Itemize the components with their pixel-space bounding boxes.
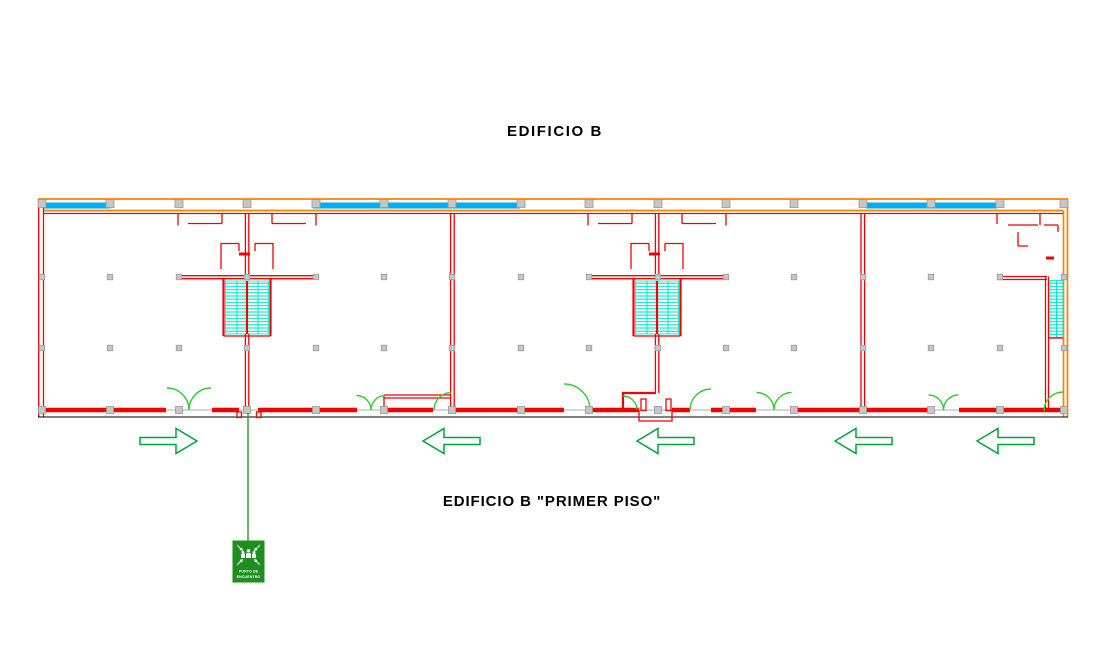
sign-text-line2: ENCUENTRO	[237, 575, 261, 579]
column-marker	[723, 274, 729, 280]
column-marker	[655, 274, 661, 280]
column-marker	[860, 274, 866, 280]
column-marker	[586, 274, 592, 280]
column-marker	[722, 200, 730, 208]
column-marker	[39, 274, 45, 280]
column-marker	[106, 200, 114, 208]
column-marker	[655, 407, 662, 414]
restroom-partitions-right	[997, 214, 1058, 259]
column-marker	[381, 274, 387, 280]
column-marker	[243, 200, 251, 208]
exterior-wall-top	[38, 199, 1068, 214]
exterior-wall-left	[39, 199, 44, 417]
column-marker	[790, 200, 798, 208]
column-marker	[312, 200, 320, 208]
restroom-partitions-middle	[588, 214, 726, 276]
column-marker	[723, 407, 730, 414]
partition-wall	[384, 214, 865, 411]
column-marker	[517, 200, 525, 208]
window-band	[44, 203, 110, 209]
column-marker	[175, 200, 183, 208]
stairwell-middle	[588, 214, 726, 394]
column-marker	[928, 274, 934, 280]
column-marker	[859, 200, 867, 208]
column-marker	[107, 407, 114, 414]
column-marker	[928, 345, 934, 351]
column-marker	[244, 345, 250, 351]
column-marker	[723, 345, 729, 351]
column-marker	[107, 345, 113, 351]
column-marker	[449, 345, 455, 351]
meeting-point-sign: PUNTO DE ENCUENTRO	[233, 541, 264, 582]
restroom-partitions-left	[178, 214, 316, 276]
column-marker	[244, 274, 250, 280]
exterior-wall-bottom	[38, 399, 1068, 421]
column-marker	[176, 407, 183, 414]
column-marker	[39, 407, 46, 414]
column-marker	[518, 407, 525, 414]
column-marker	[860, 407, 867, 414]
direction-arrow-left	[637, 429, 694, 454]
column-marker	[996, 200, 1004, 208]
column-marker	[1061, 407, 1068, 414]
column-marker	[655, 345, 661, 351]
column-marker	[449, 407, 456, 414]
column-marker	[791, 407, 798, 414]
column-marker	[928, 407, 935, 414]
column-marker	[585, 200, 593, 208]
column-marker	[586, 407, 593, 414]
column-marker	[381, 345, 387, 351]
column-marker	[38, 200, 46, 208]
column-marker	[176, 274, 182, 280]
sign-text-line1: PUNTO DE	[239, 570, 259, 574]
column-marker	[176, 345, 182, 351]
stairwell-right	[997, 214, 1063, 411]
window-band	[313, 203, 520, 209]
column-marker	[313, 345, 319, 351]
direction-arrow-right	[140, 429, 197, 454]
column-marker	[586, 345, 592, 351]
column-marker	[791, 274, 797, 280]
column-marker	[518, 345, 524, 351]
column-marker	[860, 345, 866, 351]
column-marker	[997, 345, 1003, 351]
column-marker	[791, 345, 797, 351]
column-marker	[448, 200, 456, 208]
column-marker	[654, 200, 662, 208]
exterior-wall-right	[1064, 199, 1068, 417]
column-marker	[380, 200, 388, 208]
column-marker	[381, 407, 388, 414]
direction-arrow-left	[423, 429, 480, 454]
exit-flow-arrows	[140, 429, 1034, 454]
column-marker	[1060, 200, 1068, 208]
column-marker	[313, 274, 319, 280]
column-marker	[518, 274, 524, 280]
direction-arrow-left	[835, 429, 892, 454]
column-grid	[38, 200, 1068, 414]
column-marker	[997, 407, 1004, 414]
column-marker	[313, 407, 320, 414]
column-marker	[1061, 345, 1067, 351]
column-marker	[1061, 274, 1067, 280]
column-marker	[244, 407, 251, 414]
stairwell-left	[178, 214, 316, 411]
column-marker	[107, 274, 113, 280]
direction-arrow-left	[977, 429, 1034, 454]
floor-plan-drawing: PUNTO DE ENCUENTRO	[0, 0, 1116, 662]
column-marker	[927, 200, 935, 208]
column-marker	[449, 274, 455, 280]
column-marker	[997, 274, 1003, 280]
column-marker	[39, 345, 45, 351]
